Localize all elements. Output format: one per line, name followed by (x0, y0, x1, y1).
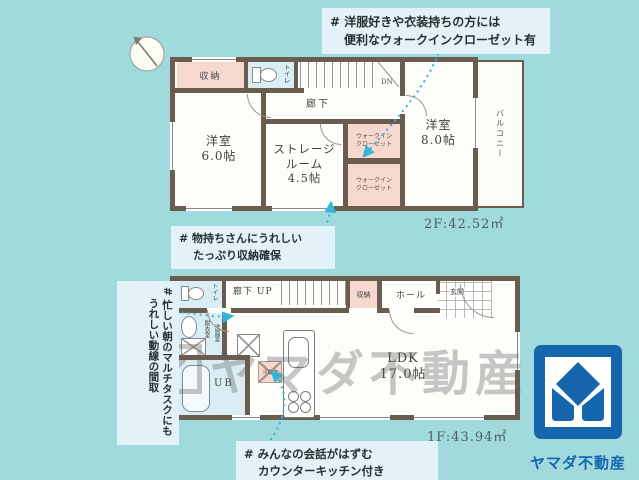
f2-area-label: 2F:42.52㎡ (424, 213, 504, 232)
f2-closet: 収納 (177, 62, 244, 89)
f2-hallway-label: 廊下 (306, 95, 330, 110)
f2-storage-room-size: 4.5帖 (288, 171, 322, 185)
note-line: # 忙しい朝のマルチタスクにも (159, 287, 173, 439)
watermark-text: ヤマダ不動産 (210, 334, 528, 404)
note-line: うれしい動線の間取 (146, 287, 160, 439)
yamada-logo-text: ヤマダ不動産 (521, 452, 635, 473)
f2-stairs (300, 62, 378, 88)
note-storage: # 物持ちさんにうれしい たっぷり収納確保 (171, 226, 335, 269)
balcony: バルコニー (476, 60, 524, 208)
f1-closet-label: 収納 (357, 290, 371, 300)
f1-toilet-icon (188, 287, 204, 300)
note-kitchen: # みんなの会話がはずむ カウンターキッチン付き (236, 441, 438, 480)
f1-closet: 収納 (350, 281, 377, 308)
yamada-logo-icon (533, 344, 623, 440)
f2-bedroom6: 洋室 6.0帖 (177, 96, 261, 202)
f2-bedroom8-label: 洋室 (425, 118, 451, 133)
f2-wic1-label: クローゼット (356, 141, 392, 149)
f2-storage-room-label: ストレージ (273, 142, 335, 156)
f2-toilet-label: トイレ (281, 64, 291, 84)
north-compass-icon (124, 27, 168, 73)
watermark: ヤマダ不動産 (152, 334, 528, 404)
f2-storage-room-label: ルーム (286, 157, 323, 171)
f1-hall-label: ホール (396, 288, 426, 301)
f2-walk-in-closet-1: ウォークイン クローゼット (348, 124, 400, 158)
balcony-label: バルコニー (495, 109, 506, 159)
note-walk-in-closet: # 洋服好きや衣装持ちの方には 便利なウォークインクローゼット有 (322, 8, 550, 54)
note-line: 便利なウォークインクローゼット有 (330, 31, 542, 49)
f2-walk-in-closet-2: ウォークイン クローゼット (348, 164, 400, 206)
note-line: # みんなの会話がはずむ (244, 447, 373, 461)
f2-bedroom6-size: 6.0帖 (201, 149, 236, 164)
floorplan-canvas: # 洋服好きや衣装持ちの方には 便利なウォークインクローゼット有 バルコニー 収… (0, 0, 639, 480)
f2-toilet-icon (260, 68, 277, 82)
note-line: たっぷり収納確保 (179, 248, 327, 265)
f2-closet-label: 収納 (199, 69, 221, 82)
f2-wic1-label: ウォークイン (356, 133, 392, 141)
f2-bedroom6-label: 洋室 (206, 134, 232, 149)
f2-bedroom8: 洋室 8.0帖 (404, 62, 473, 204)
f2-wic2-label: クローゼット (356, 185, 392, 193)
f1-hallway-label: 廊下 UP (233, 284, 273, 297)
f1-area-label: 1F:43.94㎡ (427, 426, 507, 445)
note-line: # 物持ちさんにうれしい (179, 232, 302, 245)
note-morning: # 忙しい朝のマルチタスクにも うれしい動線の間取 (117, 281, 179, 445)
f1-stairs (281, 281, 346, 305)
f2-bedroom8-size: 8.0帖 (421, 133, 456, 148)
f2-stairs-dn-label: DN (381, 78, 393, 86)
note-line: # 洋服好きや衣装持ちの方には (330, 15, 500, 29)
f1-toilet-label: トイレ (210, 283, 219, 301)
note-line: カウンターキッチン付き (244, 463, 430, 480)
f2-wic2-label: ウォークイン (356, 177, 392, 185)
